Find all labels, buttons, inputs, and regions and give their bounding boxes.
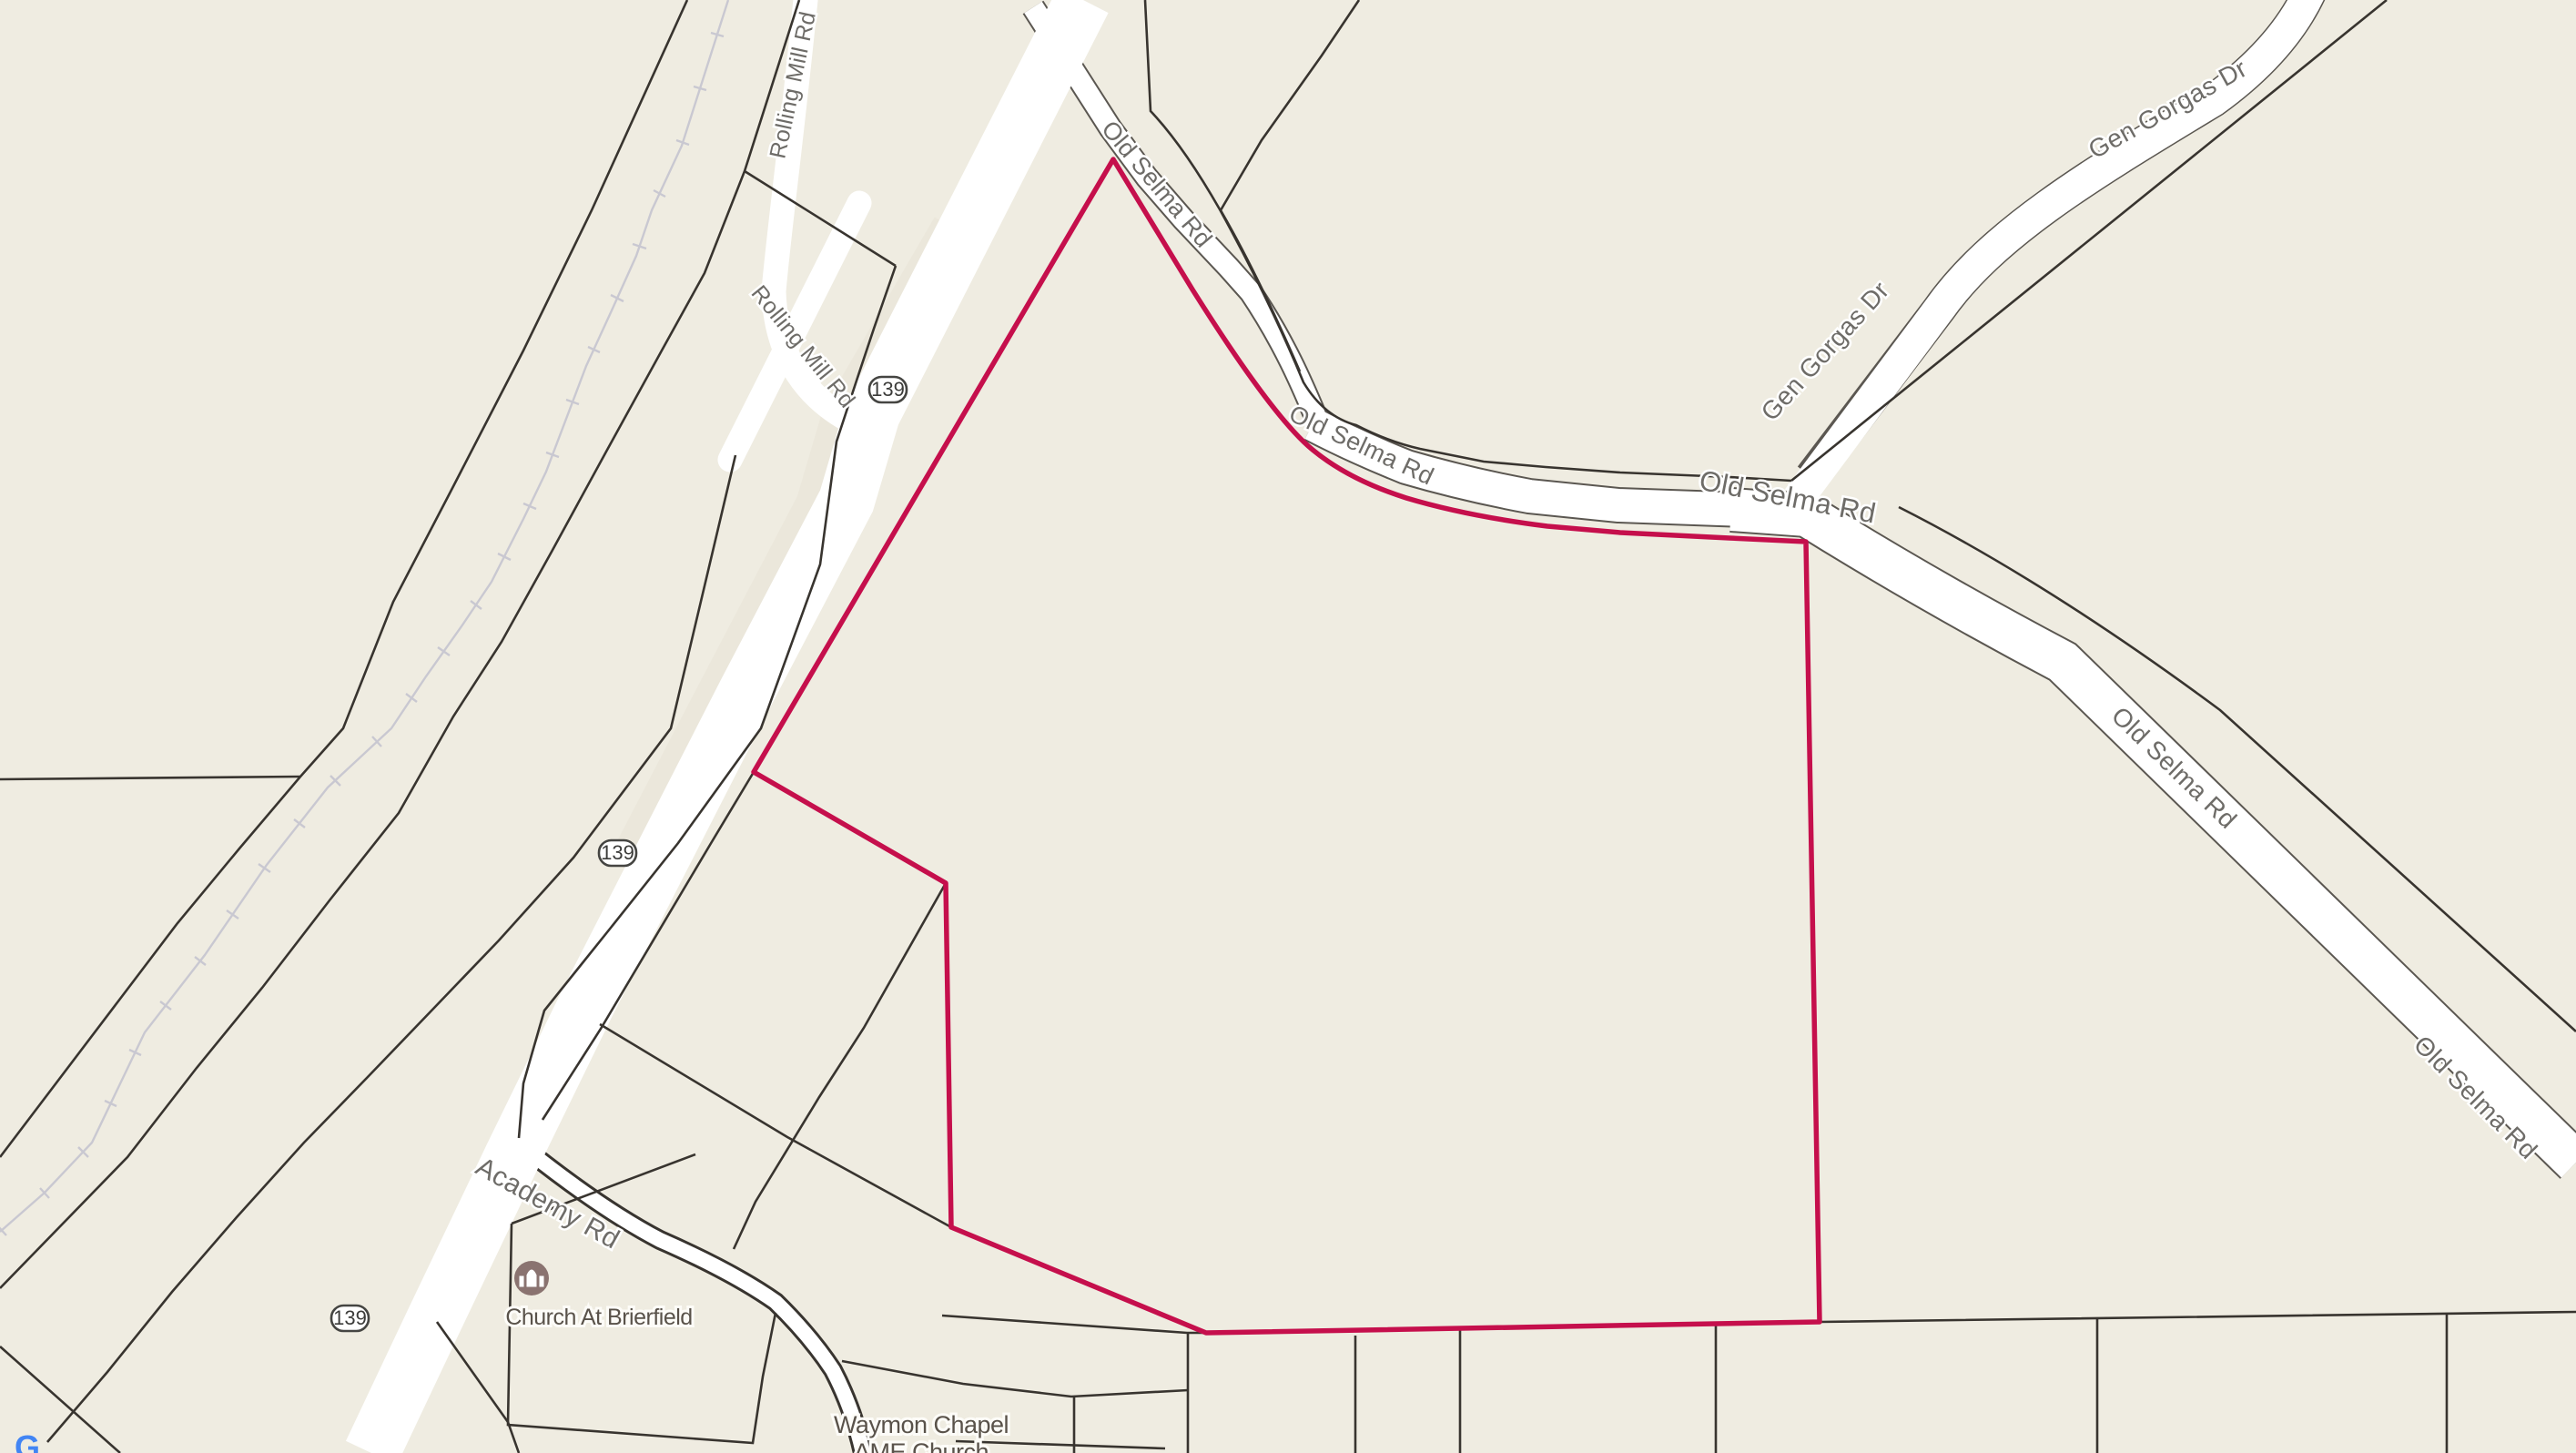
svg-text:139: 139 — [871, 378, 905, 401]
svg-text:G: G — [15, 1428, 40, 1453]
svg-text:Waymon Chapel: Waymon Chapel — [834, 1411, 1009, 1438]
svg-text:AME Church: AME Church — [854, 1438, 989, 1453]
svg-text:139: 139 — [601, 841, 634, 864]
svg-text:139: 139 — [333, 1306, 367, 1329]
svg-text:Church At Brierfield: Church At Brierfield — [505, 1305, 692, 1330]
